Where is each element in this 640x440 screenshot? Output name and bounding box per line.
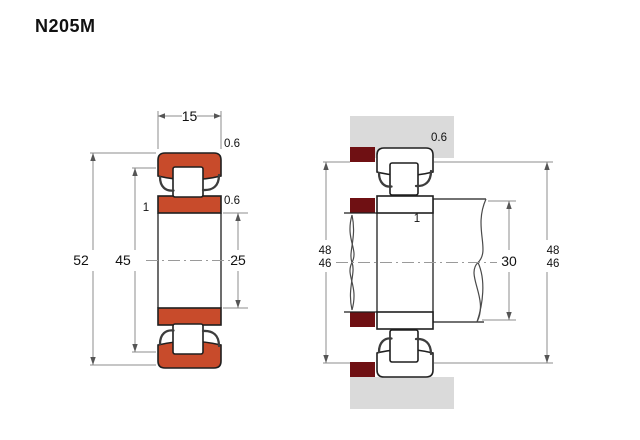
- left-view-cross-section: 15 0.6 52 45 1 25 0.6: [73, 108, 248, 368]
- arrow-up: [132, 168, 137, 176]
- page-title: N205M: [35, 16, 96, 36]
- arrow-left: [158, 113, 165, 118]
- inner-ring-top-section: [158, 196, 221, 213]
- shaft-right-break: [474, 199, 486, 322]
- shaft-right-edges: [433, 199, 486, 322]
- housing-block-bottom: [350, 377, 454, 409]
- arrow-up: [323, 162, 328, 170]
- dim-left-abutment-upper: 48: [319, 245, 332, 257]
- right-view-mounted: 0.6 1 48 46 30 48 46: [319, 116, 560, 409]
- dim-width: 15: [182, 108, 198, 124]
- roller-top: [390, 163, 418, 195]
- dim-outer-chamfer: 0.6: [431, 132, 447, 144]
- roller-bottom: [173, 324, 203, 354]
- abutment-ring-inner-bottom: [350, 312, 375, 327]
- inner-ring-bottom-section: [377, 312, 433, 329]
- dim-right-abutment-lower: 46: [547, 258, 560, 270]
- bearing-technical-drawing: N205M 15 0.6 52: [0, 0, 640, 440]
- abutment-ring-outer-top: [350, 147, 375, 162]
- arrow-down: [132, 344, 137, 352]
- inner-ring-bottom-section: [158, 308, 221, 325]
- abutment-ring-outer-bottom: [350, 362, 375, 377]
- arrow-up: [544, 162, 549, 170]
- arrow-up: [235, 213, 240, 221]
- drawing-page: N205M 15 0.6 52: [0, 0, 640, 440]
- arrow-right: [214, 113, 221, 118]
- dim-inner-chamfer: 0.6: [224, 195, 240, 207]
- roller-bottom: [390, 330, 418, 362]
- inner-ring-top-section: [377, 196, 433, 213]
- arrow-down: [506, 312, 511, 320]
- roller-top: [173, 167, 203, 197]
- dim-rib-width: 1: [414, 213, 420, 225]
- dim-left-abutment-lower: 46: [319, 258, 332, 270]
- dim-rib-width: 1: [143, 202, 149, 214]
- arrow-up: [506, 201, 511, 209]
- dim-shaft-shoulder-diameter: 30: [501, 253, 517, 269]
- arrow-up: [90, 153, 95, 161]
- abutment-ring-inner-top: [350, 198, 375, 213]
- dim-outer-chamfer: 0.6: [224, 138, 240, 150]
- arrow-down: [90, 357, 95, 365]
- arrow-down: [544, 355, 549, 363]
- dim-right-abutment-upper: 48: [547, 245, 560, 257]
- arrow-down: [235, 300, 240, 308]
- dim-bore-diameter: 25: [230, 252, 246, 268]
- arrow-down: [323, 355, 328, 363]
- dim-flange-diameter: 45: [115, 252, 131, 268]
- bore-side-faces: [158, 213, 221, 308]
- dim-outer-diameter: 52: [73, 252, 89, 268]
